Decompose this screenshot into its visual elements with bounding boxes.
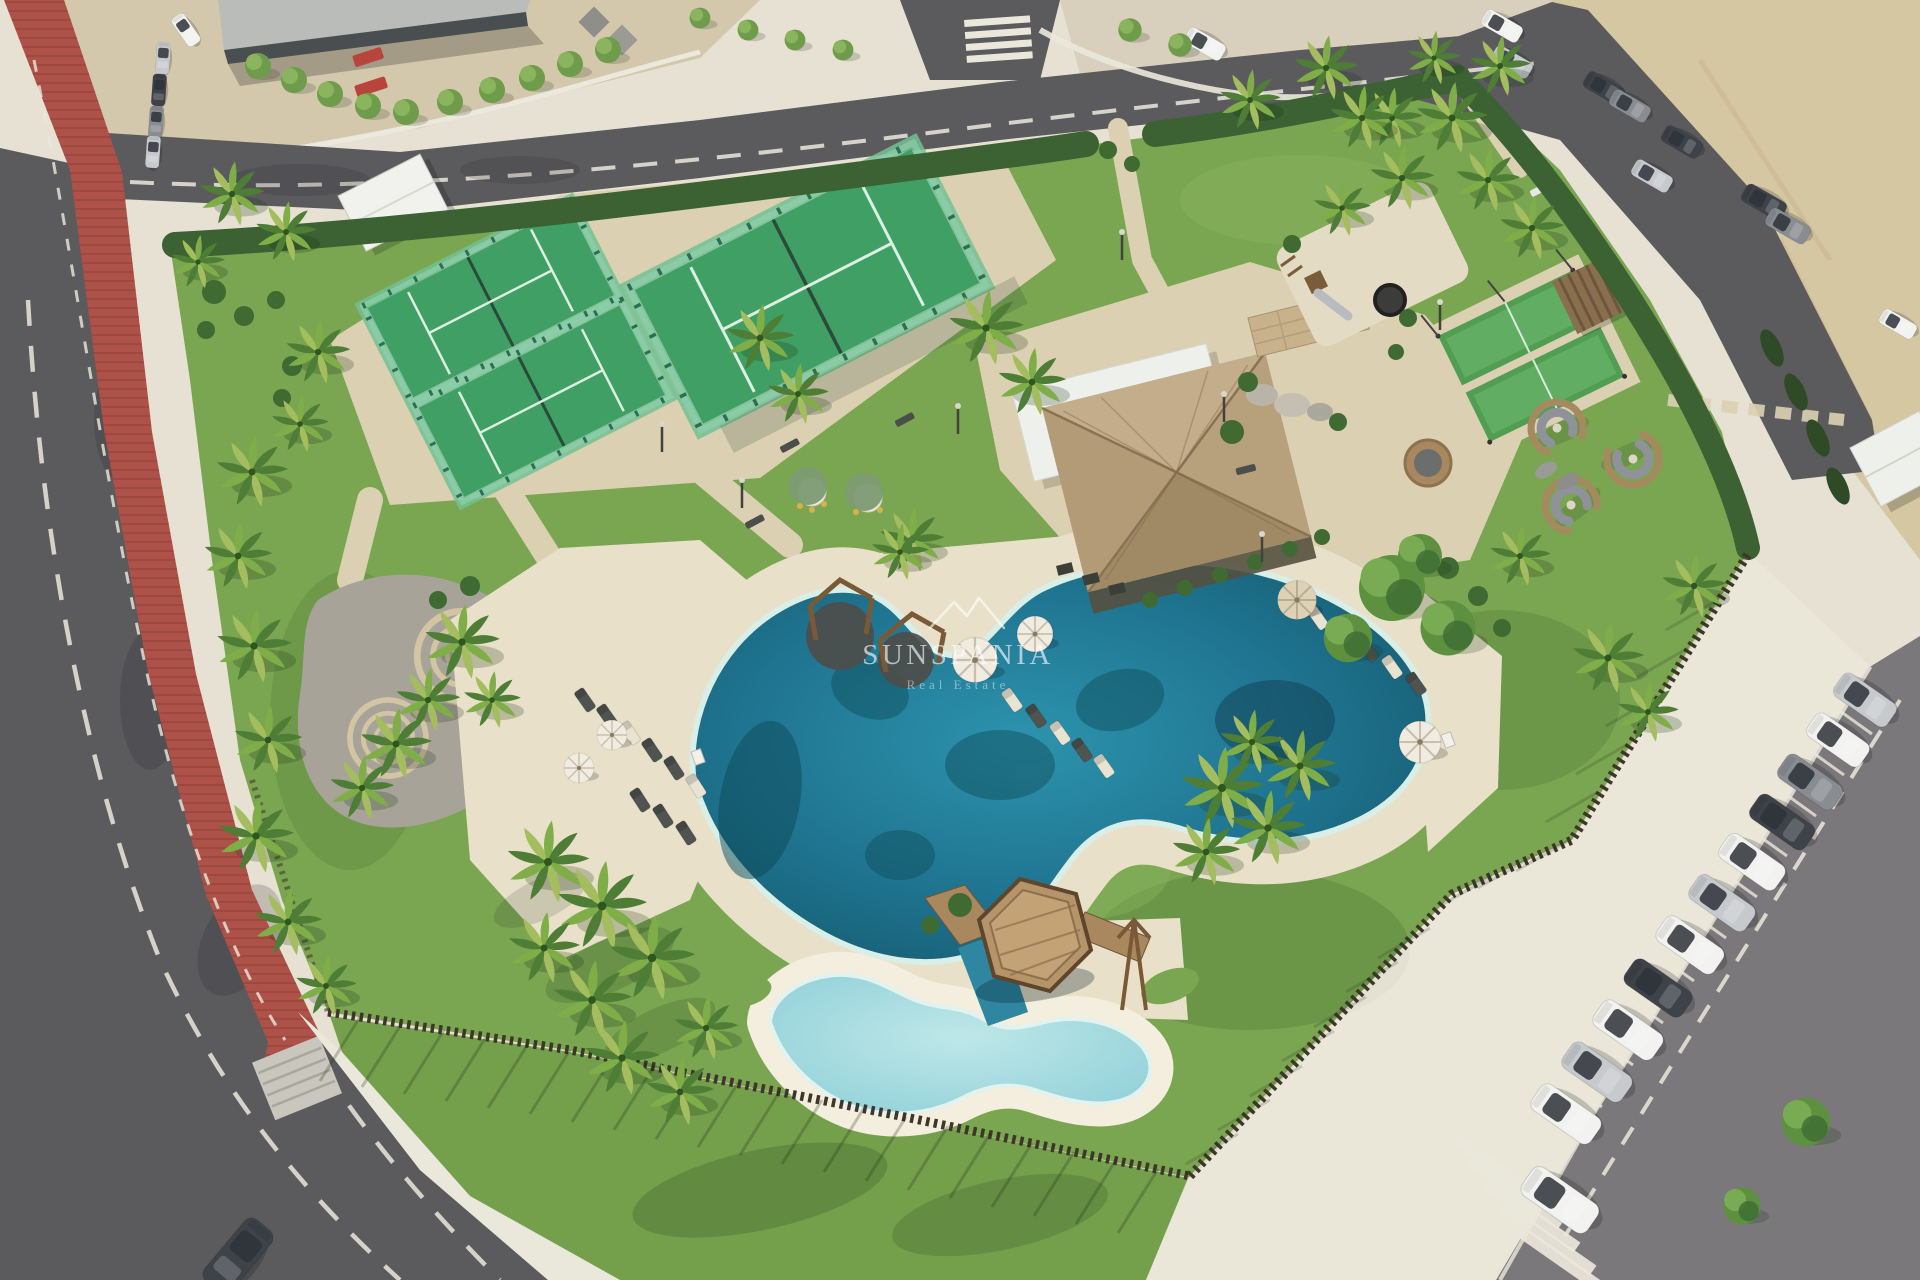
aerial-photo-resort-amenities: SUNSPANIA Real Estate bbox=[0, 0, 1920, 1280]
boulder bbox=[1274, 393, 1310, 417]
hot-tub-water bbox=[1414, 449, 1442, 477]
boulder bbox=[1307, 403, 1333, 421]
watermark-tagline: Real Estate bbox=[907, 677, 1010, 692]
watermark-brand: SUNSPANIA bbox=[862, 639, 1054, 671]
trampoline bbox=[1375, 285, 1405, 315]
aerial-render: SUNSPANIA Real Estate bbox=[0, 0, 1920, 1280]
